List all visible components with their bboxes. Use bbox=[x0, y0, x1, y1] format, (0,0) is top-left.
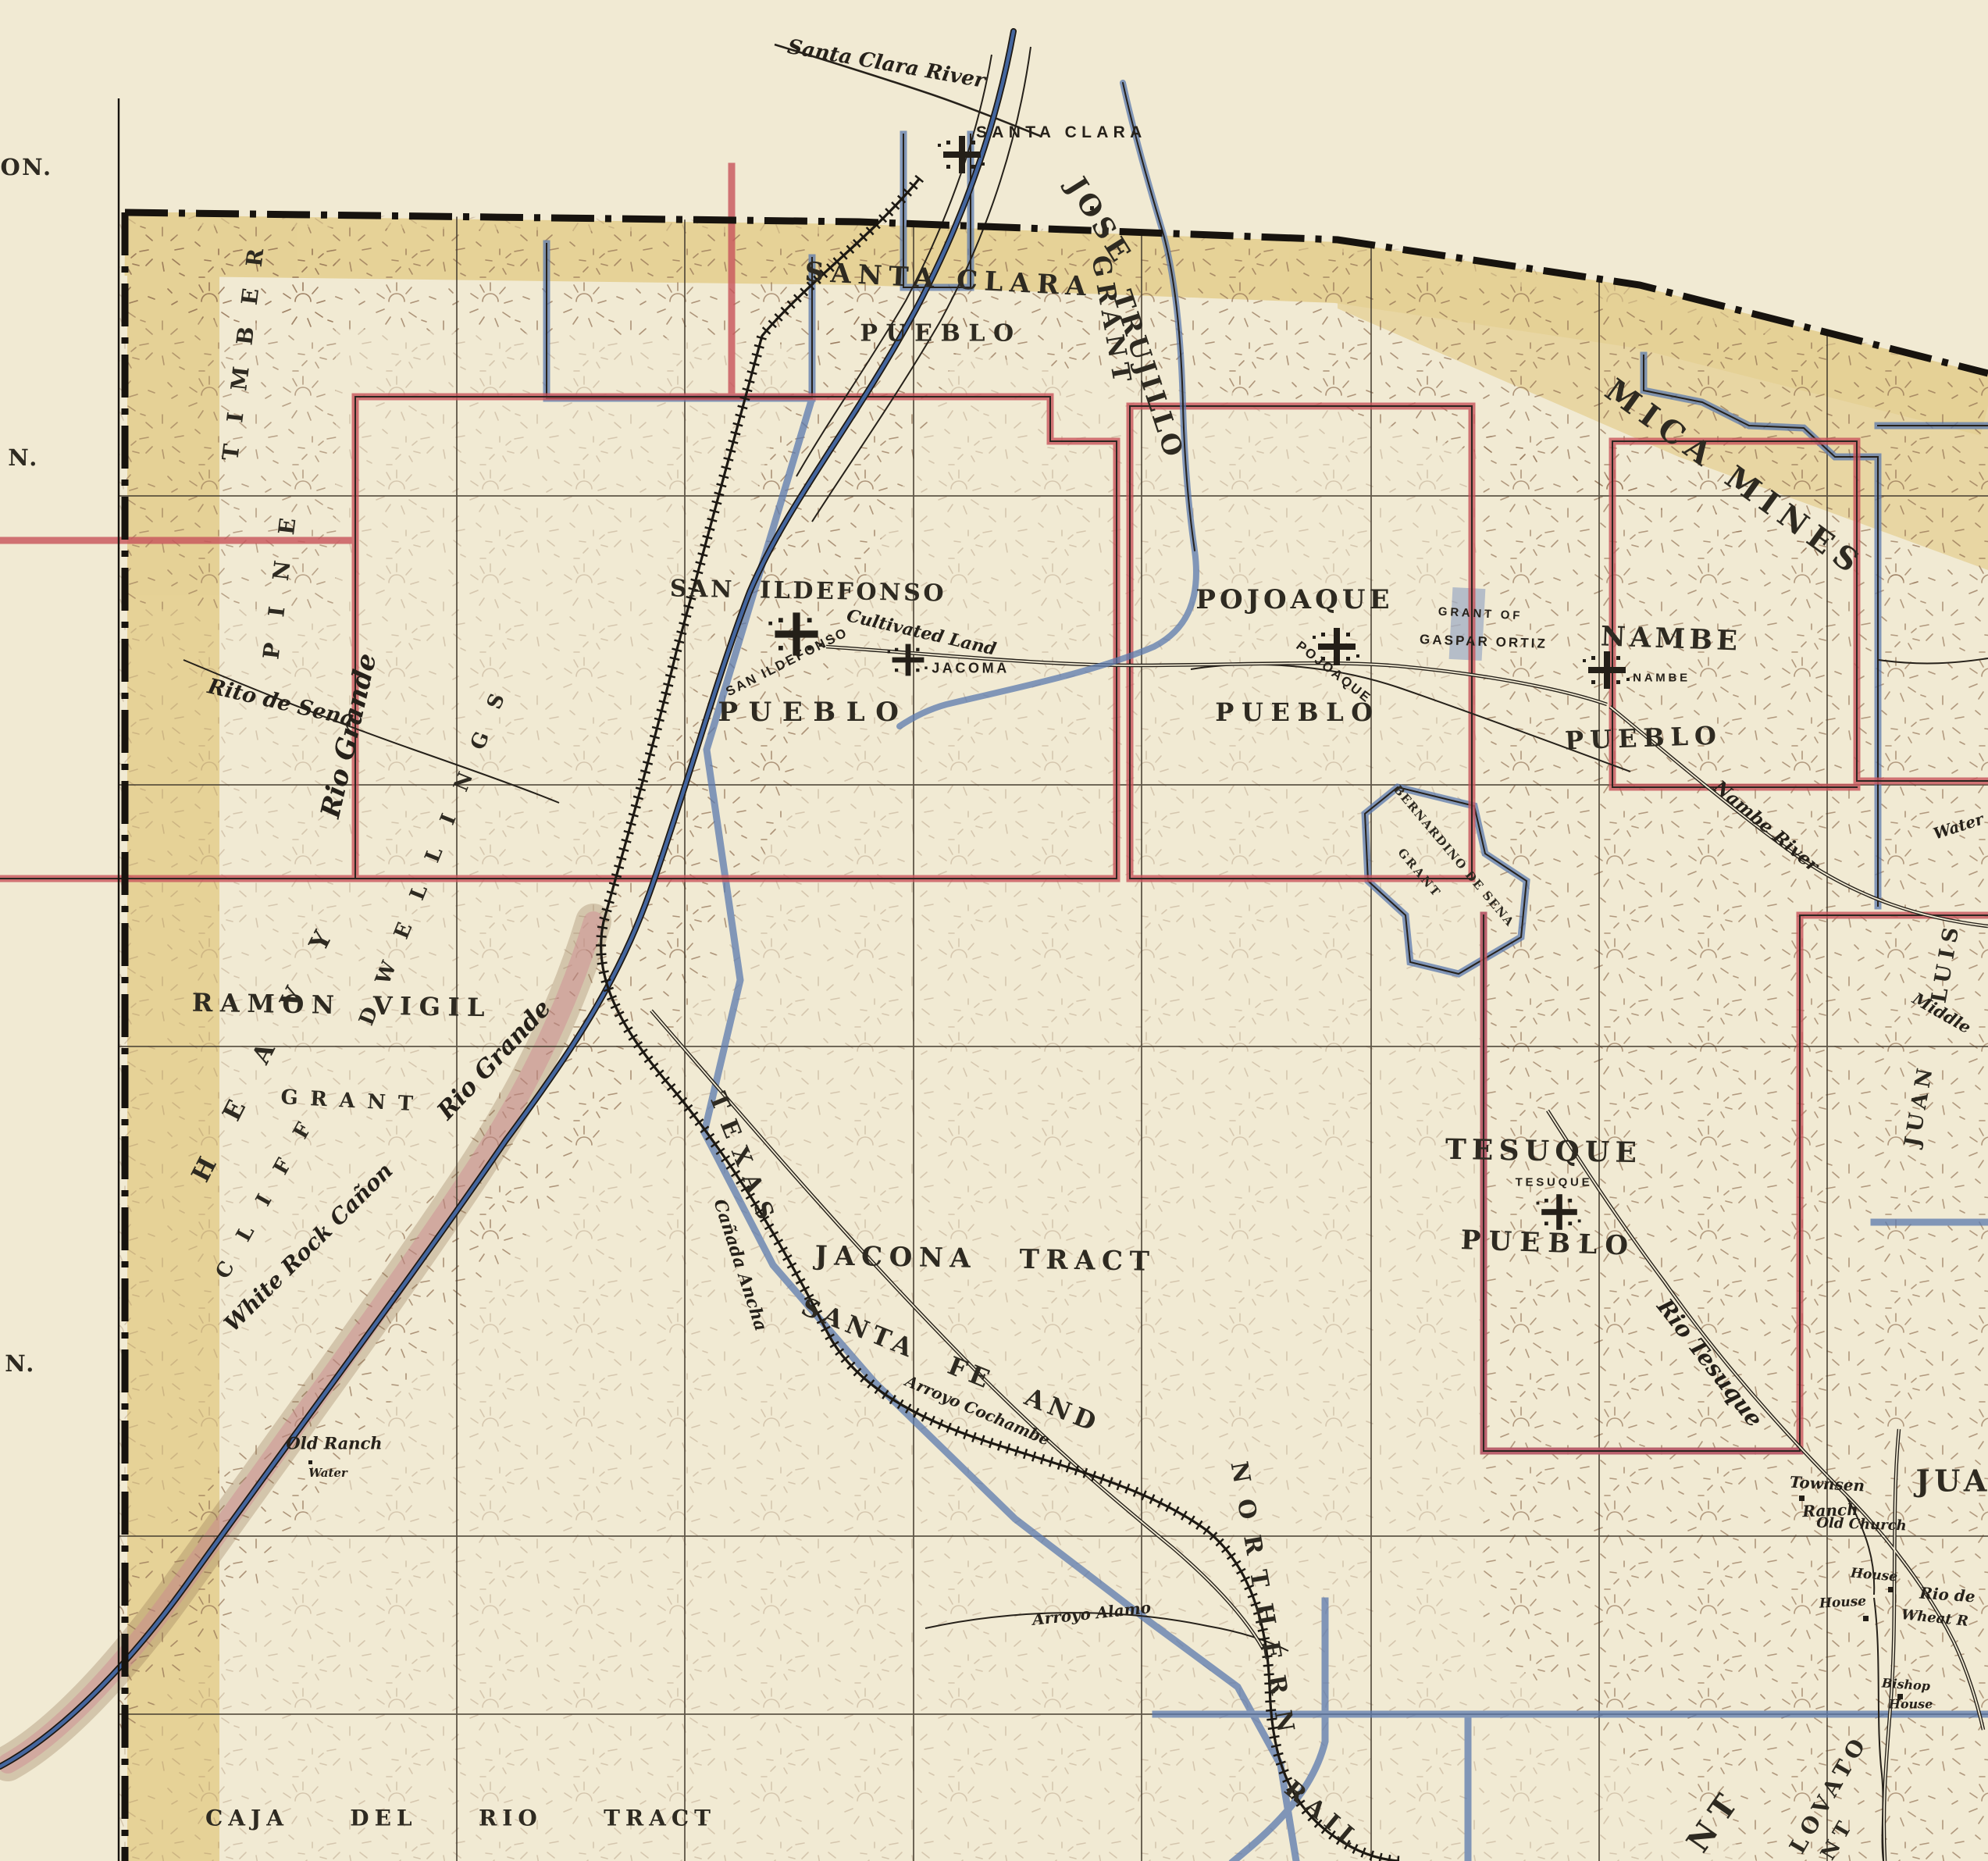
label-nambe-pueblo: PUEBLO bbox=[1565, 720, 1723, 755]
label-tesuque: TESUQUE bbox=[1445, 1133, 1643, 1169]
label-bishop-house: House bbox=[1889, 1697, 1933, 1712]
label-old-ranch-water: Water bbox=[308, 1466, 347, 1480]
label-santa-clara-pueblo: PUEBLO bbox=[860, 320, 1021, 348]
label-san-ildefonso: SAN ILDEFONSO bbox=[670, 575, 947, 607]
label-tesuque-pueblo: PUEBLO bbox=[1460, 1225, 1637, 1262]
label-rio-de: Rio de bbox=[1919, 1584, 1976, 1606]
label-caja-del-rio: CAJA DEL RIO TRACT bbox=[205, 1806, 716, 1831]
label-jacona-tract: JACONA TRACT bbox=[814, 1240, 1156, 1278]
label-old-church: Old Church bbox=[1816, 1514, 1907, 1534]
label-margin-on: ON. bbox=[1, 154, 53, 180]
label-si-pueblo: PUEBLO bbox=[718, 697, 910, 728]
label-pojoaque: POJOAQUE bbox=[1195, 584, 1393, 615]
label-townsen: Townsen bbox=[1789, 1472, 1865, 1495]
label-juan-big: JUAN bbox=[1916, 1463, 1988, 1499]
map-sheet: Santa Clara River SANTA CLARA SANTA CLAR… bbox=[0, 0, 1988, 1861]
label-house-b: House bbox=[1819, 1593, 1866, 1611]
label-pojoaque-pueblo: PUEBLO bbox=[1215, 697, 1380, 727]
label-tesuque-town: TESUQUE bbox=[1516, 1176, 1593, 1189]
label-old-ranch: Old Ranch bbox=[286, 1434, 382, 1453]
label-nambe: NAMBE bbox=[1600, 620, 1742, 657]
label-nambe-town: NAMBE bbox=[1633, 672, 1691, 685]
label-margin-n1: N. bbox=[8, 444, 38, 471]
label-jacoma: JACOMA bbox=[932, 661, 1010, 677]
label-santa-clara-town: SANTA CLARA bbox=[976, 123, 1147, 142]
label-ramon-vigil: RAMON VIGIL bbox=[191, 988, 492, 1023]
label-margin-n2: N. bbox=[5, 1350, 35, 1377]
